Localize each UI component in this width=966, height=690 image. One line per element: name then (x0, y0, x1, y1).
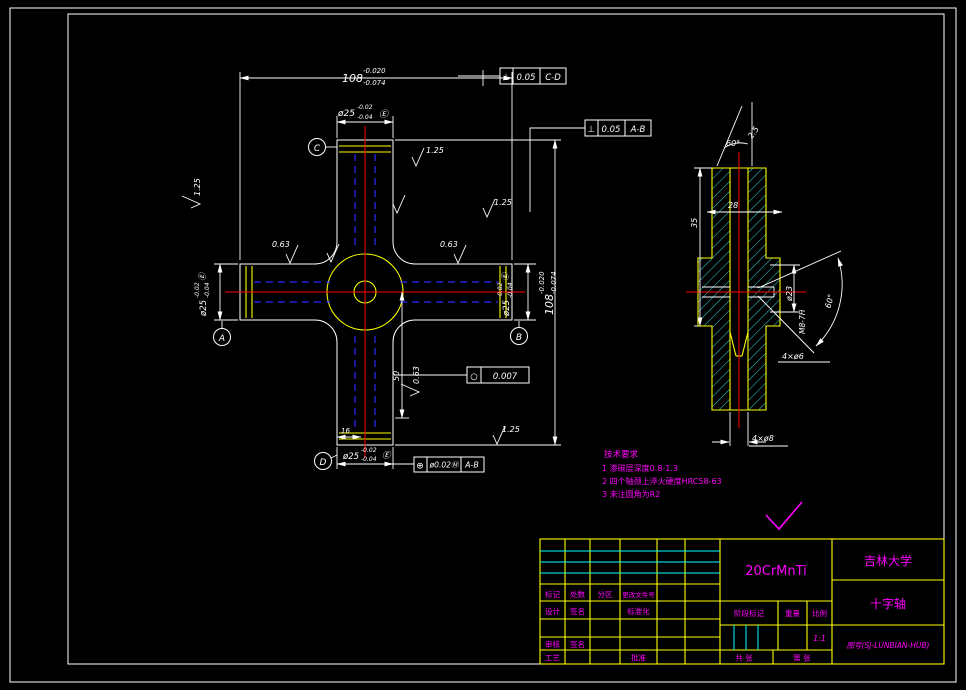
dim-journal-right-value: ø25 (502, 300, 512, 317)
note-line-3: 3 未注圆角为R2 (602, 489, 660, 499)
label-weight: 重量 (785, 609, 800, 618)
label-standardize: 标准化 (627, 606, 650, 616)
thread-m8-7h: M8-7H (798, 309, 807, 334)
ra-125-top: 1.25 (426, 146, 444, 155)
dim-journal-bottom-lo: -0.04 (361, 456, 377, 463)
dim-journal-top-lo: -0.04 (357, 114, 373, 121)
gdt1-datum: C-D (545, 73, 561, 83)
dim-108v-upper-tol: -0.020 (538, 271, 546, 294)
ra-125-left-rotated: 1.25 (193, 178, 202, 196)
dim-108-upper-tol: -0.020 (363, 67, 386, 75)
dim-108-lower-tol: -0.074 (363, 79, 386, 87)
dim-journal-left-value: ø25 (199, 300, 209, 317)
envelope-symbol-bottom: Ⓔ (382, 450, 392, 461)
datum-c-label: C (314, 144, 321, 154)
datum-b-label: B (516, 333, 522, 343)
gdt4-symbol: ○ (470, 372, 477, 382)
label-sign2: 签名 (570, 639, 585, 649)
notes-title: 技术要求 (604, 449, 639, 460)
cad-canvas: 108 -0.020 -0.074 ⊥ 0.05 C-D ⊥ 0.05 A-B … (0, 0, 966, 690)
dim-journal-left-hi: -0.02 (194, 282, 201, 298)
datum-d-label: D (320, 458, 327, 468)
dim-journal-left-lo: -0.04 (204, 282, 211, 298)
label-mark: 标记 (545, 589, 560, 599)
label-sheets-total: 共 张 (735, 654, 753, 663)
dim-journal-right-lo: -0.04 (507, 282, 514, 298)
datum-a-label: A (218, 334, 225, 344)
label-thread-m8: M8-7H (798, 309, 807, 334)
material-spec: 20CrMnTi (745, 564, 807, 579)
label-approve: 批准 (631, 653, 646, 663)
gdt1-symbol: ⊥ (502, 73, 510, 83)
drawing-number: 图号(SJ-LUNBIAN-HUB) (847, 641, 930, 650)
hatch-right (748, 168, 766, 410)
dim-50-value: 50 (392, 371, 401, 381)
gdt1-tolerance: 0.05 (517, 73, 536, 83)
gdt2-datum: A-B (630, 125, 646, 135)
label-change-file: 更改文件号 (622, 590, 655, 599)
scale-value: 1:1 (813, 634, 826, 643)
organization-name: 吉林大学 (864, 553, 912, 568)
label-count: 处数 (570, 589, 585, 599)
angle-60-top: 60° (726, 139, 740, 148)
gdt3-tolerance: ø0.02Ⓜ (429, 461, 460, 470)
dim-108v-value: 108 (543, 294, 556, 315)
label-sheet-no: 第 张 (793, 653, 811, 663)
label-zone: 分区 (598, 590, 613, 599)
dim-28-value: 28 (728, 201, 738, 210)
dim-108-value: 108 (342, 72, 363, 85)
label-review: 审核 (545, 639, 560, 649)
label-sign: 签名 (570, 606, 585, 616)
ra-125-upper-right: 1.25 (494, 198, 512, 207)
dim-journal-bottom-value: ø25 (342, 452, 359, 462)
ra-125-lower-right: 1.25 (502, 425, 520, 434)
ra-063-right: 0.63 (440, 240, 458, 249)
holes-4x6-text: 4×ø6 (782, 352, 804, 361)
gdt2-tolerance: 0.05 (602, 125, 621, 135)
gdt3-datum: A-B (464, 461, 479, 470)
background (0, 0, 966, 690)
dim-35-value: 35 (690, 218, 699, 228)
dim-108v-lower-tol: -0.074 (550, 271, 558, 294)
gdt3-symbol: ⊕ (416, 462, 424, 472)
note-line-2: 2 四个轴颈上淬火硬度HRC58-63 (602, 476, 722, 486)
ra-063-left: 0.63 (272, 240, 290, 249)
gdt4-tolerance: 0.007 (493, 372, 518, 382)
dim-23-value: ø23 (785, 286, 794, 302)
label-design: 设计 (545, 606, 560, 616)
dim-journal-right-hi: -0.02 (497, 282, 504, 298)
label-stage-mark: 阶段标记 (734, 608, 764, 618)
dim-16-value: 16 (341, 427, 350, 435)
ra-063-bottom-rotated: 0.63 (412, 366, 421, 384)
gdt2-symbol: ⊥ (587, 125, 595, 135)
cad-drawing-screenshot: 108 -0.020 -0.074 ⊥ 0.05 C-D ⊥ 0.05 A-B … (0, 0, 966, 690)
label-scale: 比例 (812, 608, 827, 618)
dim-journal-top-value: ø25 (337, 109, 355, 119)
note-line-1: 1 渗碳层深度0.8-1.3 (602, 463, 678, 473)
dim-journal-top-hi: -0.02 (357, 104, 373, 111)
label-process: 工艺 (545, 654, 560, 663)
holes-4x8-text: 4×ø8 (752, 434, 774, 443)
part-name: 十字轴 (870, 596, 906, 611)
dim-journal-bottom-hi: -0.02 (361, 447, 377, 454)
